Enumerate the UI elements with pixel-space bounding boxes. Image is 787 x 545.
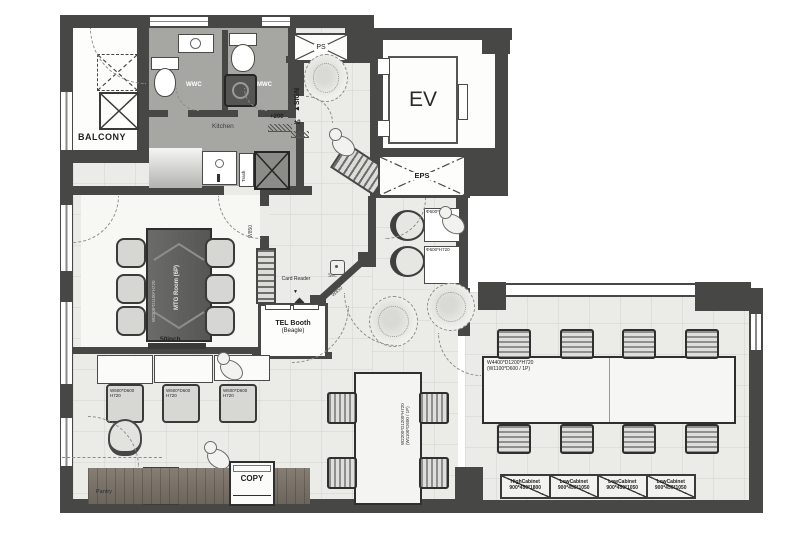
reception-desk-2-size: Φ600*H720: [426, 248, 450, 253]
tel-booth-door-glass-1: [265, 304, 291, 310]
person-figure-desks: [214, 350, 250, 384]
window-left-4: [61, 418, 72, 466]
cabinet-low-2: LowCabinet900*450*1050: [597, 474, 648, 499]
work-desk-1: W600*D600 H720: [106, 384, 144, 423]
balcony-wall-south: [60, 150, 152, 163]
mtg-chair-3: [116, 306, 146, 336]
corner-block-center: [455, 467, 483, 503]
center-table-size-2: (W1100*D600 / 1P): [405, 379, 410, 445]
pantry-label: Pantry: [96, 489, 112, 495]
shelf-ladder: [256, 248, 276, 304]
office-corner-nw: [478, 282, 506, 310]
center-chair-3: [419, 392, 449, 424]
office-island-desk: W4400*D1200*H720 (W1100*D600 / 1P): [482, 356, 736, 424]
cabinet-low-3: LowCabinet900*450*1050: [646, 474, 697, 499]
wall-bottom-right: [462, 500, 762, 513]
center-chair-1: [327, 392, 357, 424]
person-head: [204, 441, 217, 454]
mwc-toilet-bowl: [231, 44, 255, 72]
arrow-down-icon: ▼: [293, 290, 298, 296]
balcony-x-icon: [101, 94, 137, 128]
wwc-toilet-bowl: [154, 68, 176, 97]
ev-door-pocket-top: [377, 58, 390, 75]
ps-label: PS: [314, 44, 327, 52]
plant-icon-entry: [304, 54, 348, 102]
copy-machine-tray: [233, 495, 271, 502]
office-chair-b4: [685, 424, 719, 454]
ps-block-east: [345, 28, 372, 63]
card-reader-label: Card Reader: [280, 277, 312, 283]
work-desk-size2: H720: [166, 393, 177, 398]
window-left-1: [61, 92, 72, 154]
level-zero-label: ±0: [294, 120, 301, 127]
person-figure-entry: [326, 126, 360, 162]
copy-machine-top: [233, 465, 271, 472]
office-chair-t1: [497, 329, 531, 359]
security-sensor-dot: [335, 265, 338, 268]
cabinet-row: HighCabinet900*450*1800 LowCabinet900*45…: [502, 474, 696, 499]
office-island-size: W4400*D1200*H720 (W1100*D600 / 1P): [487, 360, 557, 372]
kitchen-shaft-x-icon: [256, 153, 288, 188]
balcony-label: BALCONY: [78, 133, 126, 143]
cabinet-size: 900*450*1050: [655, 485, 687, 491]
kitchen-sink: [202, 151, 237, 185]
level-zero-hatch: [291, 131, 309, 138]
copy-label: COPY: [231, 475, 273, 484]
mwc-door-gap: [238, 110, 258, 117]
office-island-size-2: (W1100*D600 / 1P): [487, 366, 557, 372]
window-top-1: [150, 17, 208, 26]
boundary-dashed-line: [62, 457, 162, 458]
center-table-size: W2200*D1200*H720 (W1100*D600 / 1P): [400, 379, 410, 445]
person-head: [329, 128, 342, 141]
mtg-chair-2: [116, 274, 146, 304]
cabinet-size: 900*450*1050: [558, 485, 590, 491]
mtg-east-door-gap: [260, 206, 269, 236]
wall-top: [60, 15, 374, 28]
ev-car: EV: [388, 56, 458, 144]
ev-label: EV: [409, 88, 437, 112]
ev-wall-right: [495, 30, 508, 152]
wall-counter-1: [97, 355, 153, 384]
work-desk-3: W600*D600 H720: [219, 384, 257, 423]
office-chair-t2: [560, 329, 594, 359]
office-corner-ne: [695, 282, 751, 311]
mtg-chair-4: [205, 238, 235, 268]
mtg-chair-1: [116, 238, 146, 268]
sign-label: ▲SIGN: [294, 70, 302, 112]
office-chair-b2: [560, 424, 594, 454]
cabinet-size: 900*450*1800: [509, 485, 541, 491]
window-left-3: [61, 302, 72, 384]
pantry-counter: [88, 468, 310, 504]
office-island-divider: [609, 358, 610, 422]
ev-door-pocket-bottom: [377, 120, 390, 137]
wwc-vanity-bowl-icon: [190, 38, 201, 49]
kitchen-counter: [149, 148, 202, 188]
work-desk-size2: H720: [110, 393, 121, 398]
sink-drain-icon: [215, 159, 224, 168]
kitchen-label: Kitchen: [212, 123, 234, 130]
wall-monitor: [148, 343, 206, 349]
ev-button-panel: [458, 84, 468, 120]
mtg-chair-6: [205, 306, 235, 336]
center-chair-4: [419, 457, 449, 489]
balcony-x-box: [99, 92, 139, 130]
level-up-hatch: [268, 124, 292, 132]
person-head: [217, 352, 230, 365]
office-chair-t4: [685, 329, 719, 359]
trash-label: Trash: [242, 154, 247, 182]
window-left-2: [61, 205, 72, 271]
cabinet-size: 900*450*1050: [606, 485, 638, 491]
kitchen-shaft: [254, 151, 290, 190]
level-up-label: +200: [270, 114, 284, 121]
window-top-2: [262, 17, 290, 26]
copy-machine: COPY: [229, 461, 275, 506]
person-head: [439, 206, 452, 219]
mtg-room-label: MTG Room (6P): [174, 236, 181, 310]
wwc-door-gap: [168, 110, 188, 117]
plant-icon-reception: [427, 283, 475, 331]
wall-counter-2: [154, 355, 213, 383]
work-desk-2: W600*D600 H720: [162, 384, 200, 423]
reception-desk-2: Φ600*H720: [424, 246, 460, 284]
security-label: Sec: [328, 274, 337, 280]
cabinet-high: HighCabinet900*450*1800: [500, 474, 551, 499]
floor-plan: BALCONY WWC MWC Trash Kitchen +200 ±0 PS…: [0, 0, 787, 545]
eps-shaft: EPS: [378, 155, 466, 197]
center-table: [354, 372, 422, 505]
window-right: [751, 314, 761, 350]
mtg-table-size: W2200*D1100*H720: [152, 242, 157, 322]
office-top-window: [502, 283, 698, 297]
cabinet-low-1: LowCabinet900*450*1050: [549, 474, 600, 499]
mtg-chair-5: [205, 274, 235, 304]
center-chair-2: [327, 457, 357, 489]
eps-label: EPS: [412, 172, 431, 180]
office-chair-b1: [497, 424, 531, 454]
office-chair-t3: [622, 329, 656, 359]
person-figure-reception: [436, 204, 470, 240]
reception-chair-2: [390, 246, 425, 277]
office-chair-b3: [622, 424, 656, 454]
work-desk-size2: H720: [223, 393, 234, 398]
sink-tap-icon: [217, 174, 220, 182]
